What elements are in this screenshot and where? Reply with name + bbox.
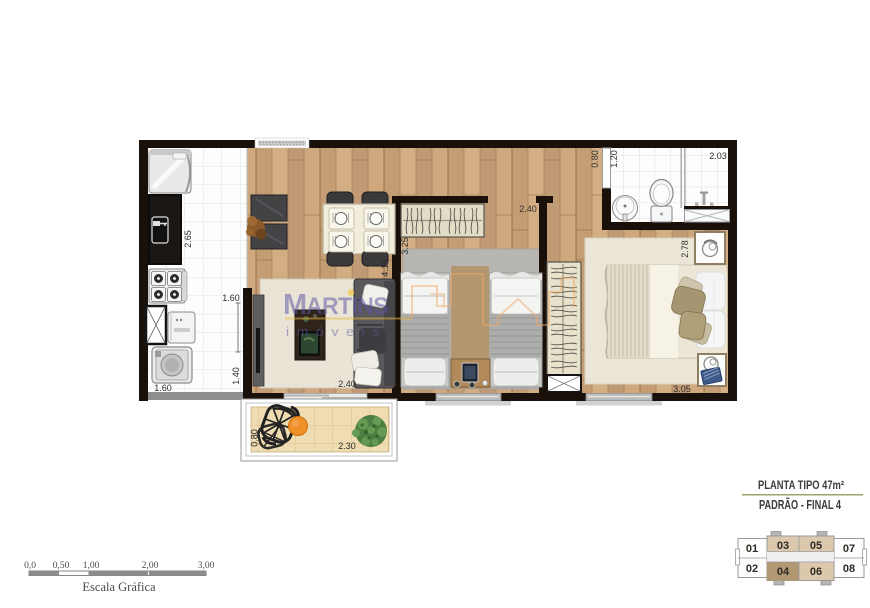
- svg-text:M: M: [283, 289, 306, 321]
- svg-text:2.40: 2.40: [338, 379, 356, 389]
- svg-text:01: 01: [746, 543, 758, 555]
- svg-text:1.60: 1.60: [222, 293, 240, 303]
- svg-text:2.65: 2.65: [183, 230, 193, 248]
- svg-text:3.05: 3.05: [673, 384, 691, 394]
- svg-text:07: 07: [843, 543, 855, 555]
- svg-text:0.80: 0.80: [590, 150, 600, 168]
- svg-text:03: 03: [777, 540, 789, 552]
- svg-text:0.80: 0.80: [250, 429, 260, 447]
- svg-text:2,00: 2,00: [142, 561, 159, 571]
- svg-text:06: 06: [810, 566, 822, 578]
- svg-text:2.78: 2.78: [680, 240, 690, 258]
- svg-text:05: 05: [810, 540, 822, 552]
- svg-text:2.30: 2.30: [338, 441, 356, 451]
- svg-text:4.15: 4.15: [380, 259, 390, 277]
- svg-text:2.40: 2.40: [519, 204, 537, 214]
- svg-text:3.25: 3.25: [400, 237, 410, 255]
- svg-text:0,50: 0,50: [53, 561, 70, 571]
- svg-text:1.60: 1.60: [154, 383, 172, 393]
- svg-text:2.03: 2.03: [709, 151, 727, 161]
- svg-text:04: 04: [777, 566, 790, 578]
- svg-text:PADRÃO - FINAL 4: PADRÃO - FINAL 4: [759, 497, 842, 512]
- svg-text:1.20: 1.20: [609, 150, 619, 168]
- svg-text:02: 02: [746, 563, 758, 575]
- svg-text:ARTINS: ARTINS: [306, 293, 389, 320]
- svg-text:1,00: 1,00: [83, 561, 100, 571]
- svg-text:imóveis: imóveis: [286, 324, 387, 339]
- svg-text:Escala Gráfica: Escala Gráfica: [82, 580, 156, 594]
- svg-text:1.40: 1.40: [231, 367, 241, 385]
- svg-text:0,0: 0,0: [24, 561, 36, 571]
- svg-text:08: 08: [843, 563, 855, 575]
- svg-text:3,00: 3,00: [198, 561, 215, 571]
- svg-text:PLANTA TIPO 47m²: PLANTA TIPO 47m²: [758, 478, 844, 492]
